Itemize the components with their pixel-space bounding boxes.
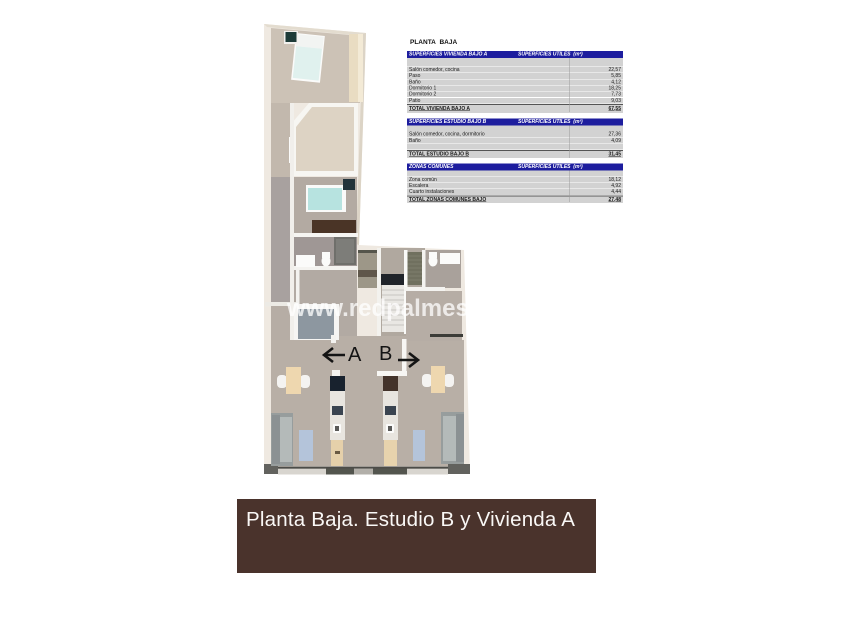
svg-text:www.redpalmes: www.redpalmes (286, 295, 469, 322)
svg-text:A: A (348, 344, 362, 366)
svg-text:B: B (379, 343, 392, 365)
